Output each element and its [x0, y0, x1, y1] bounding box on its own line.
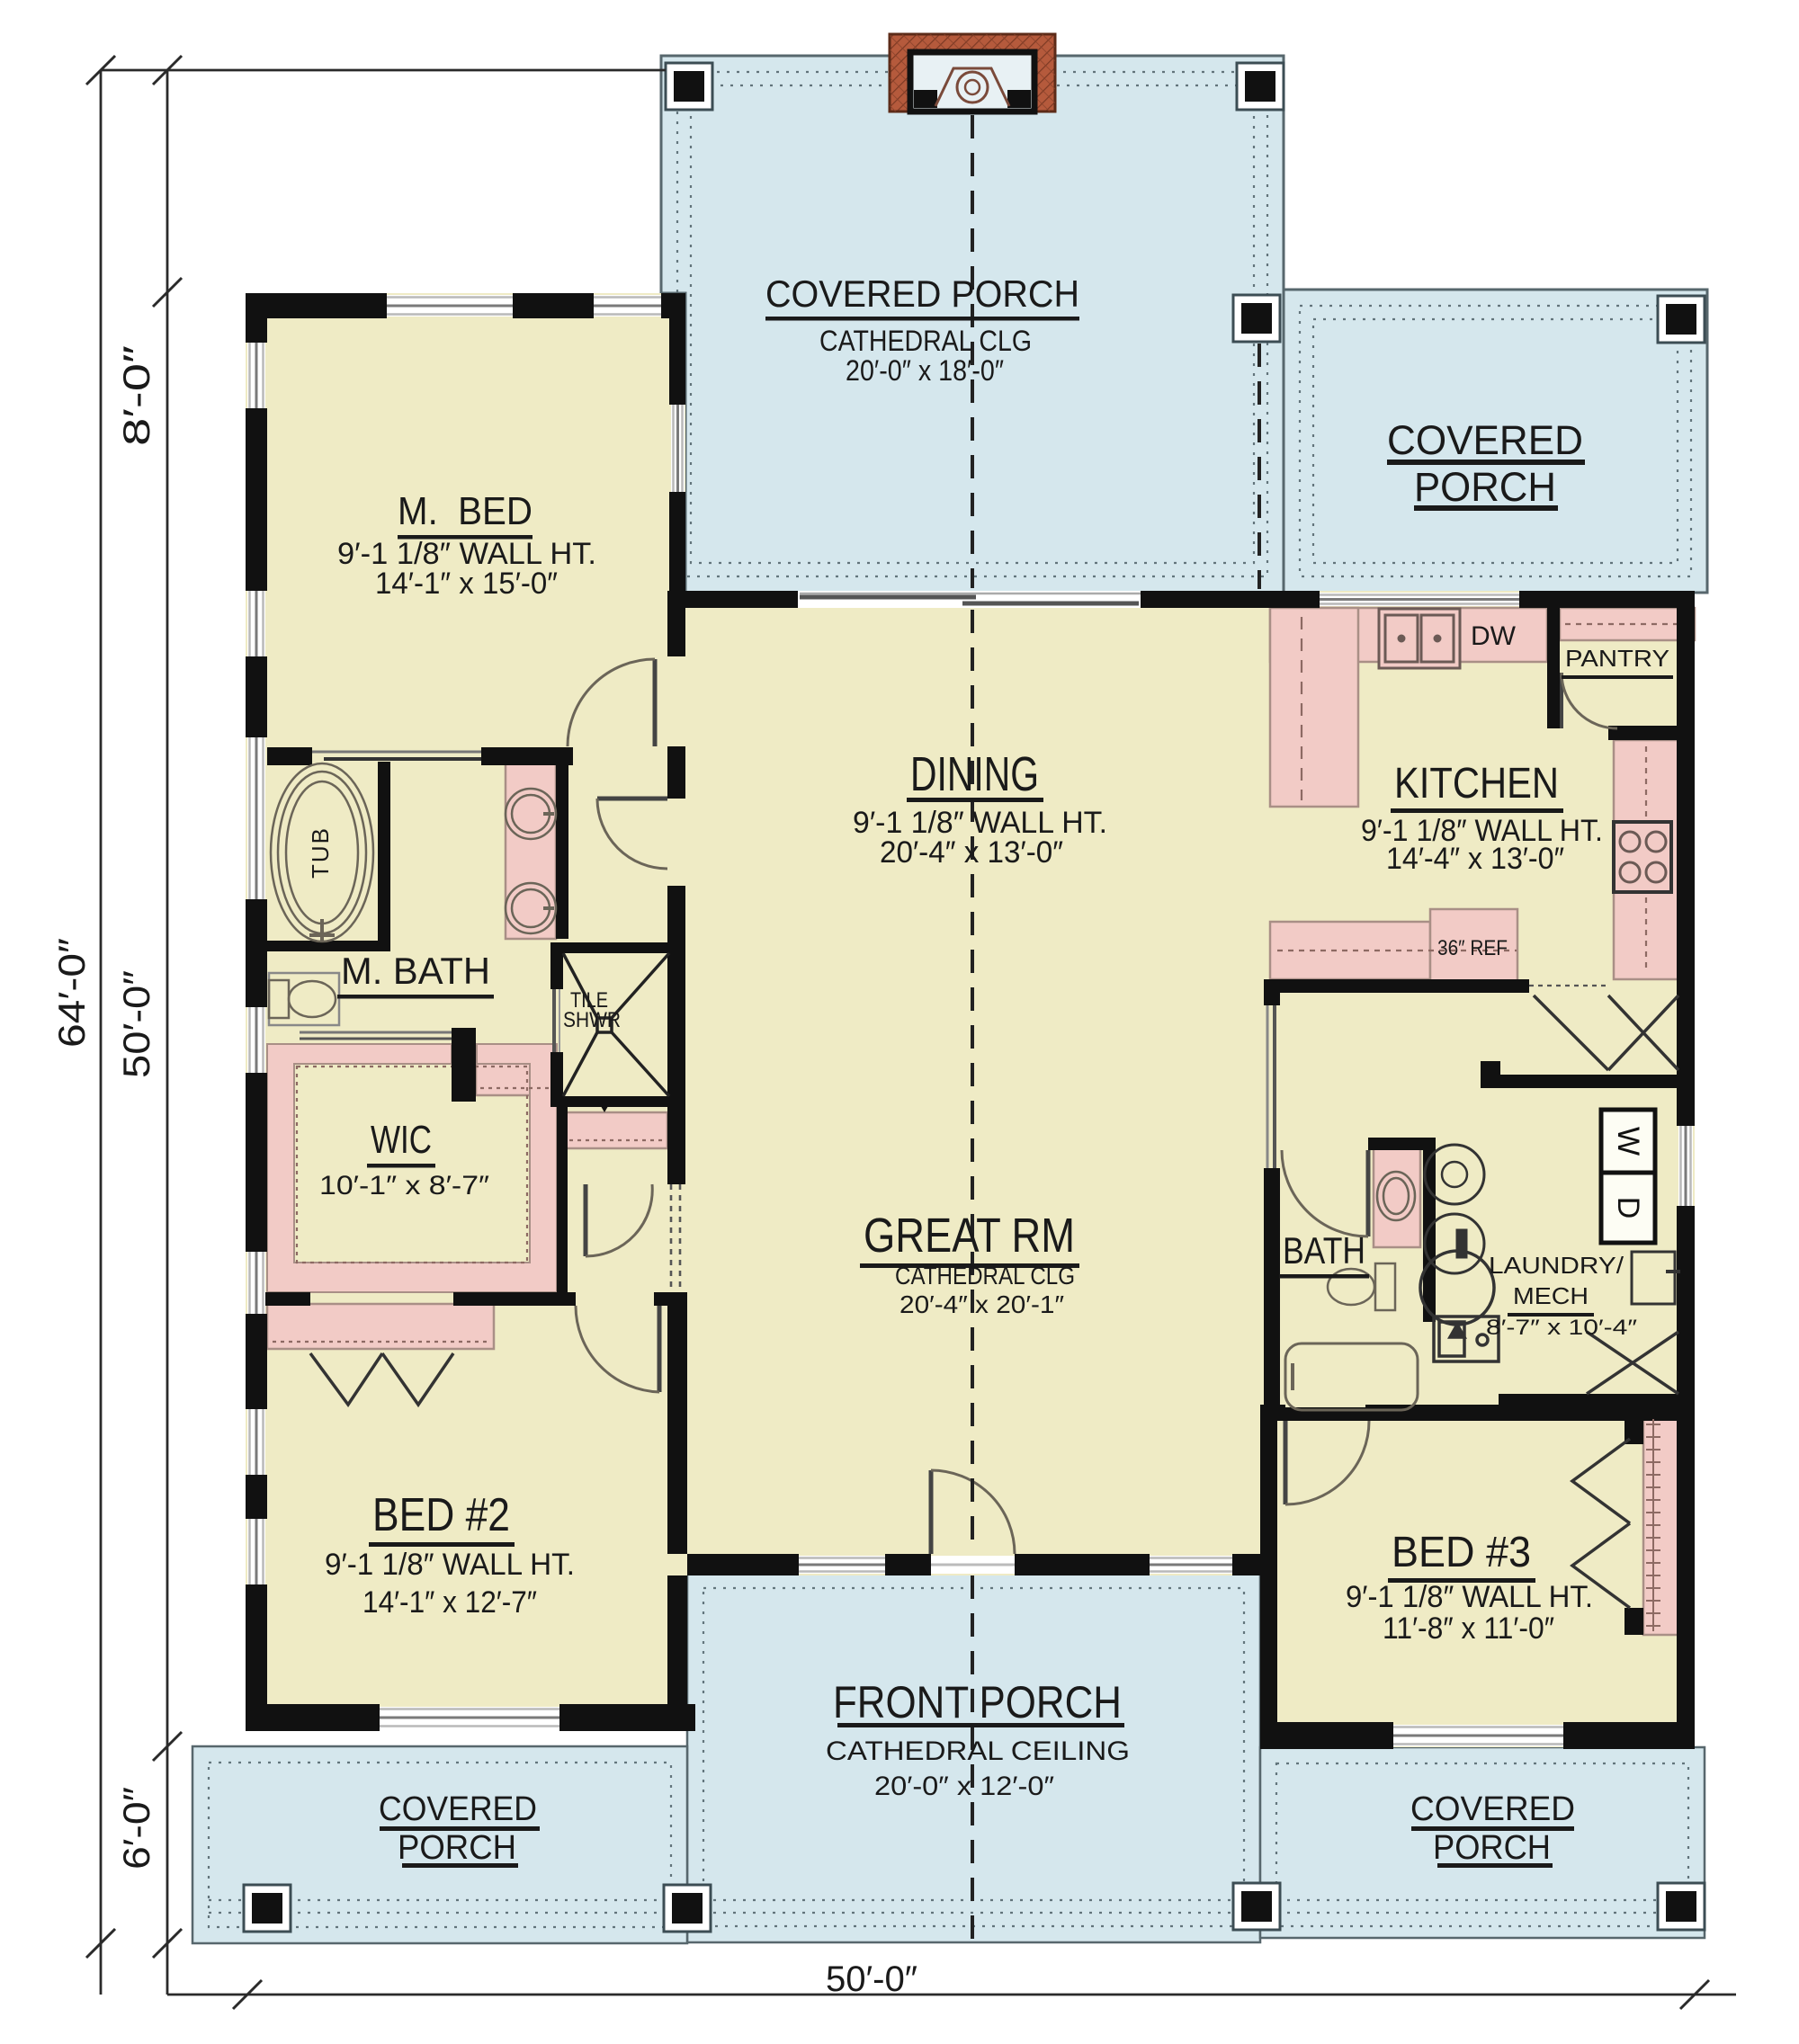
svg-text:10′-1″ x 8′-7″: 10′-1″ x 8′-7″ [319, 1171, 489, 1201]
svg-text:WIC: WIC [371, 1118, 432, 1162]
svg-text:50′-0″: 50′-0″ [115, 970, 157, 1078]
svg-text:64′-0″: 64′-0″ [50, 938, 93, 1048]
svg-text:DW: DW [1471, 621, 1517, 651]
svg-text:11′-8″ x 11′-0″: 11′-8″ x 11′-0″ [1383, 1611, 1554, 1646]
svg-text:W: W [1611, 1127, 1645, 1156]
svg-text:CATHEDRAL CEILING: CATHEDRAL CEILING [826, 1736, 1130, 1766]
svg-text:14′-1″ x 12′-7″: 14′-1″ x 12′-7″ [362, 1585, 537, 1620]
svg-text:20′-0″ x 18′-0″: 20′-0″ x 18′-0″ [846, 354, 1004, 387]
svg-text:PORCH: PORCH [1433, 1829, 1551, 1867]
svg-text:KITCHEN: KITCHEN [1394, 760, 1559, 808]
svg-text:M. BATH: M. BATH [341, 950, 490, 992]
svg-text:8′-7″ x 10′-4″: 8′-7″ x 10′-4″ [1486, 1316, 1638, 1340]
svg-text:20′-0″ x 12′-0″: 20′-0″ x 12′-0″ [874, 1772, 1054, 1801]
svg-text:D: D [1611, 1197, 1645, 1219]
svg-text:8′-0″: 8′-0″ [115, 345, 157, 446]
svg-text:COVERED PORCH: COVERED PORCH [765, 272, 1079, 315]
svg-text:FRONT PORCH: FRONT PORCH [833, 1677, 1122, 1727]
svg-text:MECH: MECH [1513, 1282, 1589, 1309]
svg-text:DINING: DINING [910, 747, 1039, 801]
svg-text:20′-4″ x 20′-1″: 20′-4″ x 20′-1″ [899, 1290, 1064, 1318]
svg-text:LAUNDRY/: LAUNDRY/ [1489, 1252, 1624, 1279]
svg-text:BED #2: BED #2 [372, 1489, 510, 1541]
svg-text:PORCH: PORCH [1414, 464, 1556, 510]
svg-text:CATHEDRAL CLG: CATHEDRAL CLG [819, 325, 1032, 357]
svg-text:BATH: BATH [1283, 1229, 1365, 1272]
svg-text:PORCH: PORCH [398, 1829, 516, 1867]
svg-text:COVERED: COVERED [379, 1790, 537, 1828]
svg-text:36″ REF: 36″ REF [1437, 936, 1508, 960]
svg-text:M. BED: M. BED [398, 489, 533, 533]
svg-text:9′-1 1/8″ WALL HT.: 9′-1 1/8″ WALL HT. [1346, 1580, 1593, 1614]
svg-text:14′-4″ x 13′-0″: 14′-4″ x 13′-0″ [1386, 842, 1564, 876]
svg-text:14′-1″ x 15′-0″: 14′-1″ x 15′-0″ [375, 567, 558, 601]
svg-text:BED #3: BED #3 [1392, 1529, 1531, 1576]
svg-text:COVERED: COVERED [1387, 417, 1583, 463]
svg-text:PANTRY: PANTRY [1565, 645, 1669, 672]
svg-text:9′-1 1/8″ WALL HT.: 9′-1 1/8″ WALL HT. [325, 1548, 575, 1582]
svg-text:20′-4″ x 13′-0″: 20′-4″ x 13′-0″ [880, 835, 1063, 870]
svg-text:50′-0″: 50′-0″ [826, 1959, 917, 1999]
svg-text:TUB: TUB [307, 826, 334, 879]
svg-text:GREAT RM: GREAT RM [864, 1209, 1075, 1263]
svg-text:CATHEDRAL CLG: CATHEDRAL CLG [895, 1262, 1075, 1290]
svg-text:SHWR: SHWR [563, 1008, 621, 1032]
svg-text:6′-0″: 6′-0″ [115, 1787, 157, 1870]
svg-text:COVERED: COVERED [1410, 1790, 1575, 1828]
